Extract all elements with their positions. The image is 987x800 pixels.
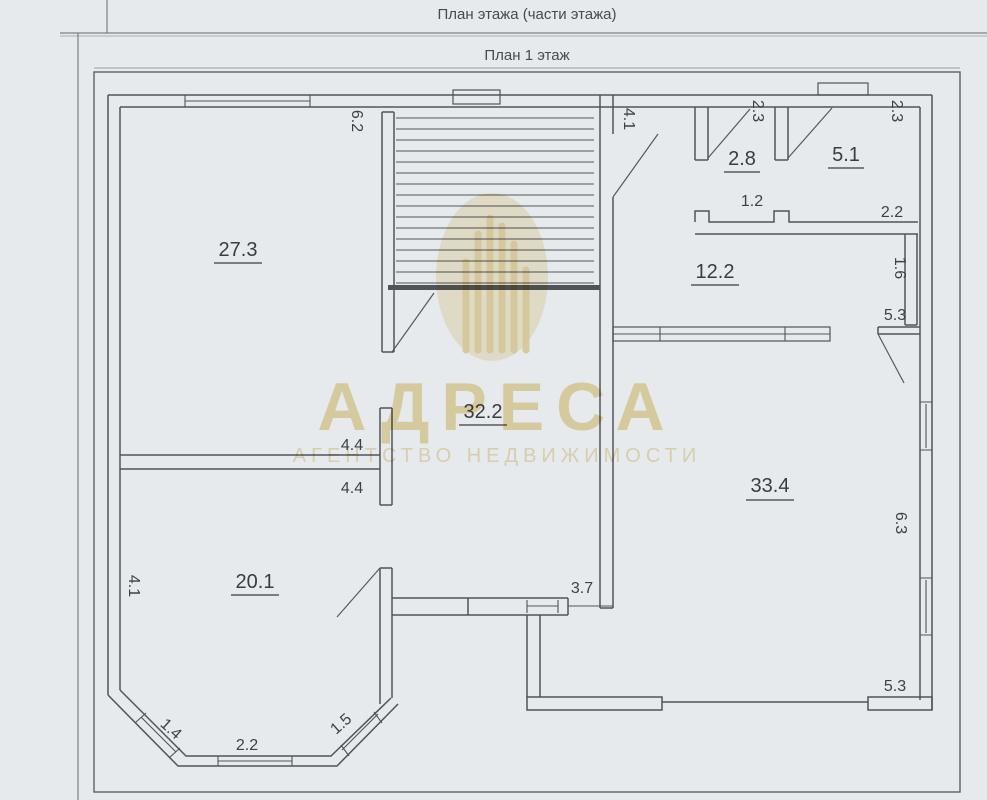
room-area-label: 33.4 [751,475,790,497]
dimension-label: 4.4 [341,480,363,497]
dimension-label: 4.1 [620,108,637,130]
dimension-label: 2.2 [881,204,903,221]
floor-plan-sheet: План этажа (части этажа) План 1 этаж [0,0,987,800]
page-subtitle: План 1 этаж [484,47,569,64]
dimension-label: 6.2 [348,110,365,132]
room-area-label: 27.3 [219,239,258,261]
watermark-tagline: АГЕНТСТВО НЕДВИЖИМОСТИ [293,445,701,467]
room-area-label: 20.1 [236,571,275,593]
room-area-label: 12.2 [696,261,735,283]
dimension-label: 2.3 [749,100,766,122]
dimension-label: 3.7 [571,580,593,597]
room-area-label: 5.1 [832,144,860,166]
dimension-label: 5.3 [884,307,906,324]
dimension-label: 2.2 [236,737,258,754]
dimension-label: 1.2 [741,193,763,210]
dimension-label: 1.6 [891,257,908,279]
page-title: План этажа (части этажа) [437,6,616,23]
dimension-label: 6.3 [892,512,909,534]
watermark-brand: АДРЕСА [317,369,676,445]
dimension-label: 2.3 [888,100,905,122]
floor-plan-canvas: План этажа (части этажа) План 1 этаж [0,0,987,800]
dimension-label: 4.1 [125,575,142,597]
room-area-label: 2.8 [728,148,756,170]
dimension-label: 5.3 [884,678,906,695]
